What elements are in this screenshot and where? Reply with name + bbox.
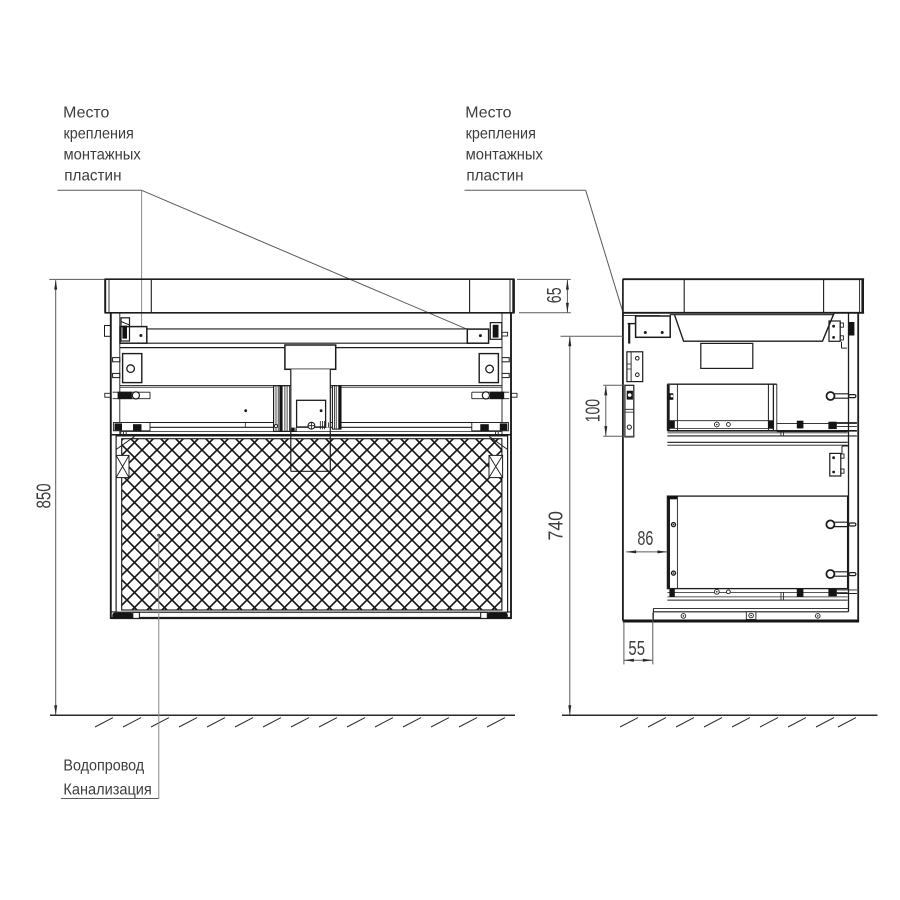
svg-text:Место: Место	[63, 104, 109, 121]
svg-text:Канализация: Канализация	[63, 782, 151, 799]
svg-text:740: 740	[546, 511, 568, 541]
svg-text:крепления: крепления	[466, 125, 536, 142]
svg-text:100: 100	[582, 399, 604, 422]
svg-text:86: 86	[637, 528, 653, 550]
svg-text:монтажных: монтажных	[64, 146, 141, 163]
svg-text:850: 850	[34, 483, 56, 508]
svg-text:пластин: пластин	[64, 167, 121, 184]
svg-text:крепления: крепления	[64, 125, 134, 142]
svg-text:Водопровод: Водопровод	[63, 758, 144, 775]
svg-text:монтажных: монтажных	[466, 146, 543, 163]
svg-text:пластин: пластин	[466, 167, 523, 184]
svg-text:Место: Место	[465, 104, 511, 121]
svg-text:65: 65	[544, 287, 566, 303]
svg-text:55: 55	[628, 638, 645, 660]
